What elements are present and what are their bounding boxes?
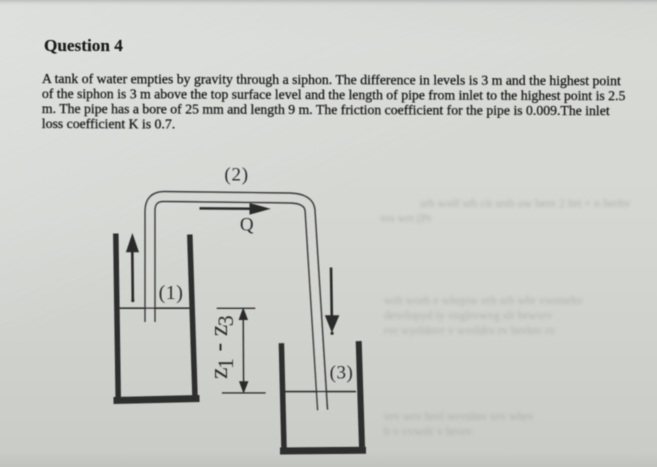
svg-text:z1 - z3: z1 - z3: [204, 315, 238, 379]
svg-text:(1): (1): [159, 282, 184, 304]
svg-text:(2): (2): [224, 165, 249, 186]
svg-text:(3): (3): [330, 363, 354, 384]
svg-text:Q: Q: [240, 215, 254, 236]
